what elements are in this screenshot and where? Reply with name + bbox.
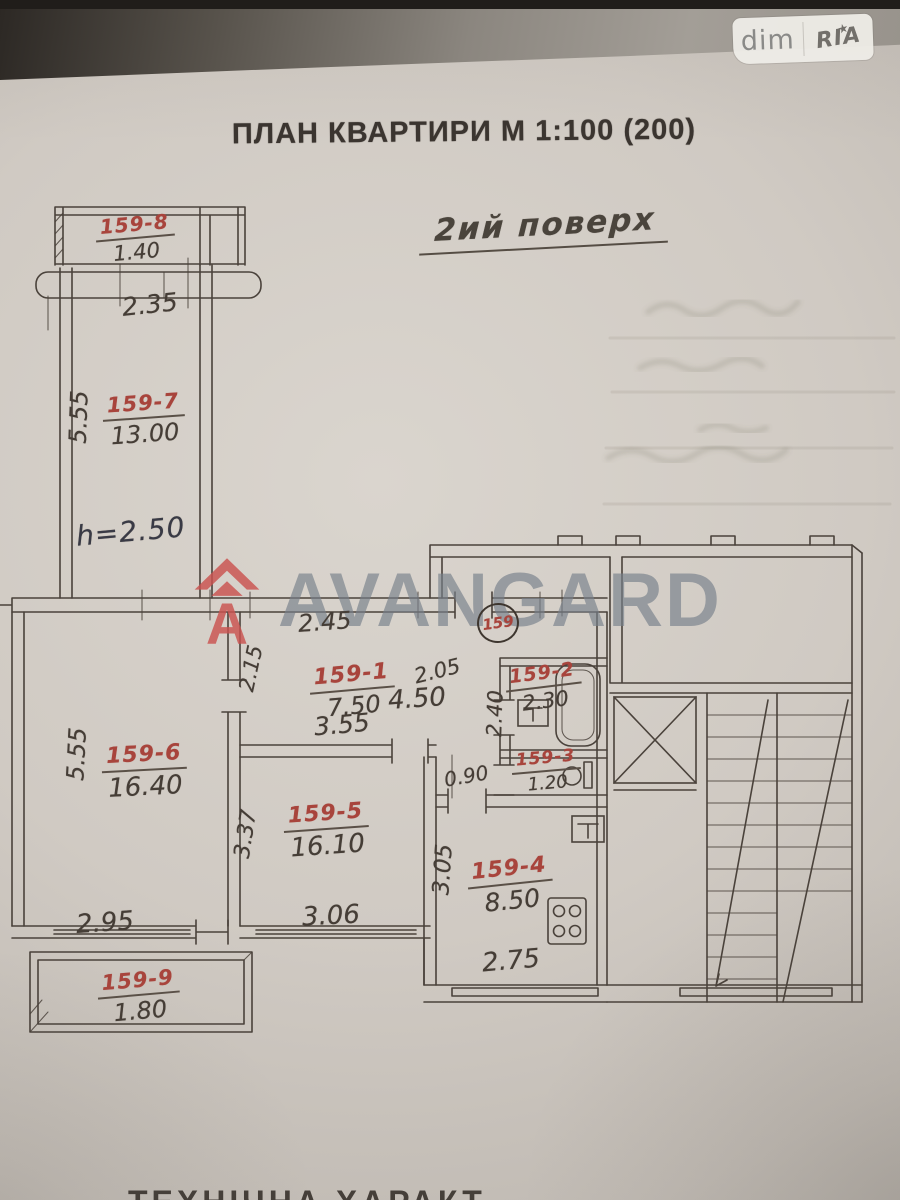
bathtub-inner-line <box>562 670 594 740</box>
slab-dimension-ticks <box>48 258 188 330</box>
dim-logo: dim <box>733 24 804 57</box>
fixtures <box>518 664 604 944</box>
kitchen-right-wall <box>597 612 607 985</box>
ria-logo-text: RIA <box>814 22 863 54</box>
avangard-logo-icon: A <box>190 552 264 648</box>
room-6-bottom-wall <box>12 920 228 944</box>
building-bottom-wall <box>607 985 862 1002</box>
bath-sink-symbol <box>518 700 548 726</box>
ria-logo: ★ RIA <box>803 24 873 51</box>
avangard-watermark: A AVANGARD <box>190 552 722 648</box>
balcony-8-walls <box>55 207 245 265</box>
footer-partial-heading: ТЕХНІЧНА ХАРАКТ <box>128 1184 486 1200</box>
room-5-bottom-wall <box>240 926 430 938</box>
stair-treads-right <box>777 715 852 891</box>
toilet-symbol <box>563 762 592 788</box>
photo-top-edge <box>0 0 900 9</box>
room-6-5-divider <box>222 612 246 926</box>
kitchen-bottom-wall <box>424 938 607 1002</box>
building-right-wall <box>852 545 862 1002</box>
balcony-9-walls <box>30 952 252 1032</box>
dim-ria-watermark-badge: dim ★ RIA <box>732 14 874 65</box>
apartment-number: 159 <box>481 612 515 634</box>
room-6-left-wall <box>12 612 24 926</box>
scanned-floor-plan-photo: dim ★ RIA ПЛАН КВАРТИРИ М 1:100 (200) <box>0 0 900 1200</box>
kitchen-top-wall <box>436 789 607 813</box>
avangard-logo-letter: A <box>206 592 248 648</box>
room-1-5-divider <box>240 739 436 763</box>
backside-bleed-through <box>604 301 894 504</box>
plan-title: ПЛАН КВАРТИРИ М 1:100 (200) <box>164 113 764 152</box>
elevator-x-mark <box>614 697 696 790</box>
bathroom-walls <box>494 658 607 795</box>
dim-logo-text: dim <box>740 24 795 57</box>
room-7-walls <box>60 265 212 598</box>
room-5-4-divider <box>424 757 436 985</box>
stove-symbol <box>548 898 586 944</box>
balcony-9-hatch <box>30 952 252 1032</box>
balcony-8-hatch <box>55 213 63 258</box>
balcony-8-slab <box>36 272 261 298</box>
kitchen-sink-symbol <box>572 816 604 842</box>
